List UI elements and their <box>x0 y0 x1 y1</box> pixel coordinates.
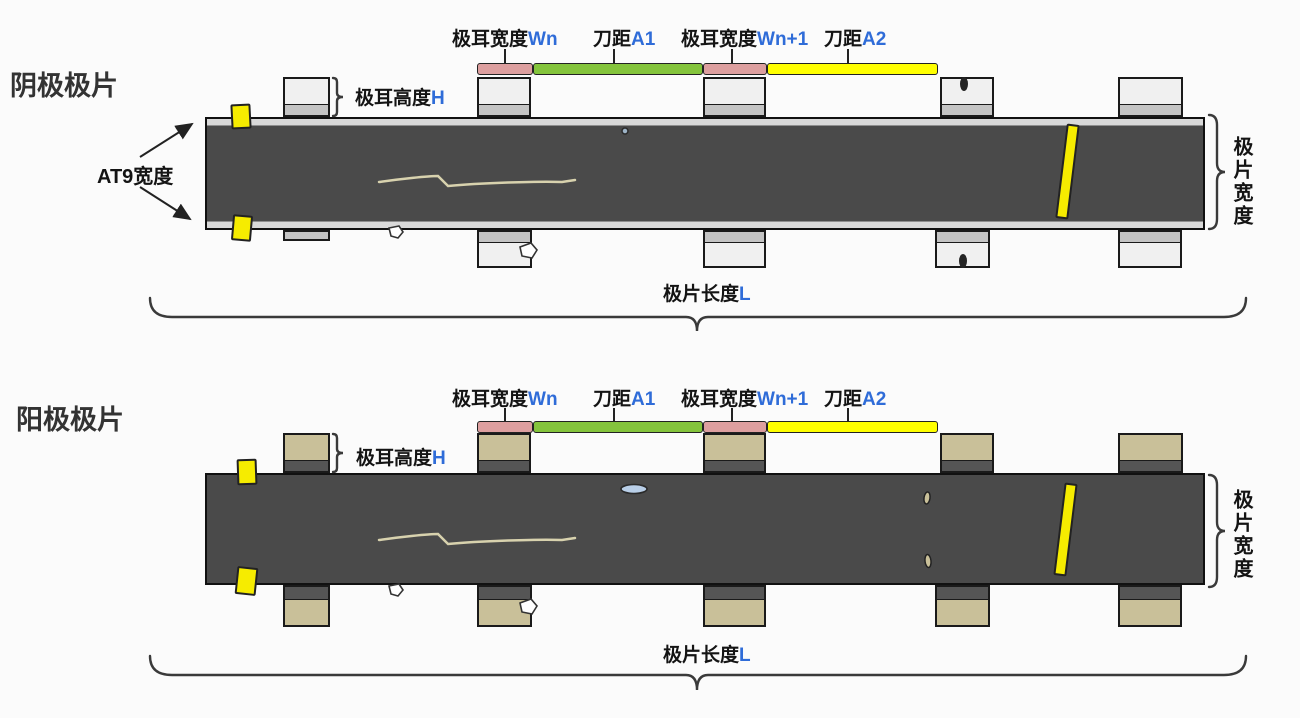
tab-width-next-var: Wn+1 <box>757 389 808 410</box>
tab-band <box>705 460 764 471</box>
cathode-top-tab-2 <box>477 77 531 117</box>
sheet-length-prefix: 极片长度 <box>663 284 739 305</box>
at9-arrow-up-icon <box>140 124 192 157</box>
knife1-prefix: 刀距 <box>593 29 631 50</box>
anode-sheet-width-label: 极片宽度 <box>1227 489 1256 581</box>
anode-knife1-label: 刀距A1 <box>593 384 655 411</box>
anode-top-tab-2 <box>477 433 531 473</box>
at9-arrow-down-icon <box>140 187 190 219</box>
tab-band <box>285 104 328 115</box>
uncoated-edge-band-bottom <box>207 221 1203 228</box>
yellow-splice-marker-bottom <box>235 566 259 596</box>
edge-chip-defect <box>389 584 403 596</box>
cathode-knife1-label: 刀距A1 <box>593 24 655 51</box>
tab-height-bracket <box>333 434 343 472</box>
tab-band <box>1120 232 1180 243</box>
sheet-length-prefix: 极片长度 <box>663 645 739 666</box>
tab-band <box>942 104 992 115</box>
cathode-tab-width-label: 极耳宽度Wn <box>452 24 558 51</box>
anode-top-tab-5 <box>1118 433 1183 473</box>
tab-band <box>479 104 529 115</box>
tab-width-next-bar <box>703 421 767 433</box>
tab-width-next-prefix: 极耳宽度 <box>681 389 757 410</box>
cathode-bottom-tab-2 <box>477 230 532 268</box>
tab-band <box>937 232 988 243</box>
knife2-prefix: 刀距 <box>824 29 862 50</box>
annotation-overlay <box>0 0 1300 718</box>
tab-band <box>1120 104 1181 115</box>
knife1-var: A1 <box>631 29 655 50</box>
tab-band <box>479 587 530 600</box>
tab-width-var: Wn <box>528 29 558 50</box>
anode-top-tab-1 <box>283 433 330 473</box>
anode-sheet-length-label: 极片长度L <box>663 640 751 667</box>
tab-width-prefix: 极耳宽度 <box>452 389 528 410</box>
cathode-bottom-tab-3 <box>703 230 766 268</box>
knife-distance-a2-bar <box>767 421 938 433</box>
cathode-top-tab-1 <box>283 77 330 117</box>
knife-distance-a1-bar <box>533 421 703 433</box>
cathode-sheet-width-label: 极片宽度 <box>1227 136 1256 228</box>
tab-band <box>479 460 529 471</box>
anode-bottom-tab-1 <box>283 585 330 627</box>
tab-width-next-var: Wn+1 <box>757 29 808 50</box>
yellow-splice-marker-bottom <box>231 214 253 242</box>
anode-tab-height-label: 极耳高度H <box>356 443 446 470</box>
tab-band <box>1120 460 1181 471</box>
tab-band <box>285 587 328 600</box>
tab-width-bar <box>477 421 533 433</box>
cathode-bottom-tab-1-stub <box>283 230 330 241</box>
yellow-splice-marker-top <box>237 459 258 486</box>
anode-top-tab-4 <box>940 433 994 473</box>
tab-height-prefix: 极耳高度 <box>355 88 431 109</box>
tab-band <box>285 460 328 471</box>
tab-height-var: H <box>432 448 446 469</box>
knife-distance-a2-bar <box>767 63 938 75</box>
sheet-width-brace <box>1209 475 1225 587</box>
cathode-bottom-tab-5 <box>1118 230 1182 268</box>
tab-width-next-bar <box>703 63 767 75</box>
at9-width-text: AT9宽度 <box>97 166 173 188</box>
at9-width-label: AT9宽度 <box>97 160 173 189</box>
anode-bottom-tab-4 <box>935 585 990 627</box>
knife2-var: A2 <box>862 29 886 50</box>
anode-bottom-tab-2 <box>477 585 532 627</box>
tab-height-prefix: 极耳高度 <box>356 448 432 469</box>
tab-width-prefix: 极耳宽度 <box>452 29 528 50</box>
tab-band <box>1120 587 1180 600</box>
knife2-var: A2 <box>862 389 886 410</box>
knife-distance-a1-bar <box>533 63 703 75</box>
yellow-splice-marker-top <box>230 103 251 129</box>
cathode-tab-height-label: 极耳高度H <box>355 83 445 110</box>
cathode-top-tab-4 <box>940 77 994 117</box>
tab-band <box>942 460 992 471</box>
tab-band <box>705 104 764 115</box>
sheet-length-var: L <box>739 645 751 666</box>
cathode-top-tab-5 <box>1118 77 1183 117</box>
cathode-tab-width-next-label: 极耳宽度Wn+1 <box>681 24 808 51</box>
tab-height-bracket <box>333 78 343 116</box>
anode-knife2-label: 刀距A2 <box>824 384 886 411</box>
knife1-prefix: 刀距 <box>593 389 631 410</box>
cathode-title: 阴极极片 <box>10 64 118 103</box>
cathode-knife2-label: 刀距A2 <box>824 24 886 51</box>
tab-height-var: H <box>431 88 445 109</box>
tab-width-bar <box>477 63 533 75</box>
anode-tab-width-next-label: 极耳宽度Wn+1 <box>681 384 808 411</box>
anode-bottom-tab-5 <box>1118 585 1182 627</box>
electrode-sheet-diagram: 阴极极片 极耳宽度Wn 刀距A1 极耳宽度Wn+1 刀距A2 极耳高度H <box>0 0 1300 718</box>
anode-bottom-tab-3 <box>703 585 766 627</box>
sheet-length-var: L <box>739 284 751 305</box>
cathode-bottom-tab-4 <box>935 230 990 268</box>
anode-title: 阳极极片 <box>16 398 124 437</box>
tab-band <box>705 232 764 243</box>
tab-width-next-prefix: 极耳宽度 <box>681 29 757 50</box>
sheet-width-brace <box>1209 115 1225 229</box>
knife1-var: A1 <box>631 389 655 410</box>
cathode-top-tab-3 <box>703 77 766 117</box>
knife2-prefix: 刀距 <box>824 389 862 410</box>
cathode-sheet-length-label: 极片长度L <box>663 279 751 306</box>
anode-tab-width-label: 极耳宽度Wn <box>452 384 558 411</box>
tab-band <box>937 587 988 600</box>
anode-top-tab-3 <box>703 433 766 473</box>
tab-band <box>479 232 530 243</box>
tab-width-var: Wn <box>528 389 558 410</box>
tab-band <box>705 587 764 600</box>
uncoated-edge-band-top <box>207 119 1203 126</box>
